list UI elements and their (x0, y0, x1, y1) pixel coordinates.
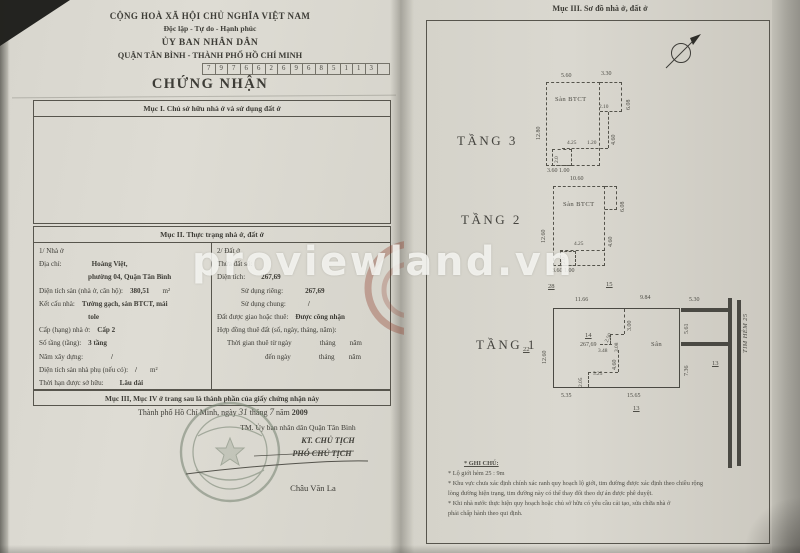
alley-connector (681, 342, 728, 346)
code-digit: 7 (228, 64, 241, 74)
issuer-name: ỦY BAN NHÂN DÂN (55, 38, 365, 48)
tang1-inner-line (600, 344, 612, 345)
north-compass-icon (662, 32, 702, 72)
note-line: * GHI CHÚ: (464, 459, 766, 469)
tang1-inner-line (610, 334, 611, 344)
tang1-inner-line (610, 334, 624, 335)
watermark-text: proviewland.vn (192, 239, 574, 285)
house-row: Địa chỉ:Hoàng Việt, (39, 258, 206, 271)
section-muc1: Mục I. Chủ sở hữu nhà ở và sử dụng đất ở (33, 100, 391, 224)
certificate-title: CHỨNG NHẬN (55, 76, 365, 93)
note-line: lòng đường hiện trạng, tim đường này có … (448, 489, 766, 499)
scan-edge-bottom (0, 545, 800, 553)
scan-corner-shadow (745, 495, 800, 553)
signature-strokes (140, 428, 380, 488)
code-digit: 2 (266, 64, 279, 74)
national-title: CỘNG HOÀ XÃ HỘI CHỦ NGHĨA VIỆT NAM (55, 11, 365, 21)
national-motto: Độc lập - Tự do - Hạnh phúc (55, 24, 365, 33)
house-row: Diện tích sàn (nhà ở, căn hộ):380,51m² (39, 285, 206, 298)
tang1-inner-line (618, 350, 619, 372)
tang1-lot-outline (553, 308, 680, 388)
note-line: * Khu vực chưa xác định chính xác ranh q… (448, 479, 766, 489)
house-row: tole (39, 311, 206, 324)
note-line: * Khi nhà nước thực hiện quy hoạch hoặc … (448, 499, 766, 509)
house-row: 1/ Nhà ở (39, 245, 206, 258)
code-digit: 7 (203, 64, 216, 74)
scan-edge-right (772, 0, 800, 553)
house-row: Cấp (hạng) nhà ở:Cấp 2 (39, 324, 206, 337)
code-digit: 6 (303, 64, 316, 74)
alley-line (737, 300, 741, 466)
year-value: 2009 (292, 408, 308, 417)
code-digit: 9 (216, 64, 229, 74)
land-row: đến ngàytháng năm (217, 351, 385, 364)
issuer-district: QUẬN TÂN BÌNH - THÀNH PHỐ HỒ CHÍ MINH (55, 51, 365, 60)
tang3-stair-notch (552, 149, 572, 166)
tang3-inner-line (608, 112, 609, 148)
house-row: Năm xây dựng:/ (39, 351, 206, 364)
house-row: phường 04, Quận Tân Bình (39, 271, 206, 284)
tang1-inner-line (588, 372, 589, 387)
tang2-wing-outline (605, 186, 617, 210)
code-digit: 8 (316, 64, 329, 74)
house-row: Kết cấu nhà:Tường gạch, sàn BTCT, mái (39, 298, 206, 311)
house-row: Diện tích sàn nhà phụ (nếu có):/m² (39, 364, 206, 377)
code-digit: 1 (353, 64, 366, 74)
code-digit: 3 (366, 64, 379, 74)
note-line: phải chấp hành theo qui định. (448, 509, 766, 519)
code-digit: 6 (253, 64, 266, 74)
muc1-heading: Mục I. Chủ sở hữu nhà ở và sử dụng đất ở (34, 101, 390, 117)
house-row: Số tầng (tầng):3 tầng (39, 337, 206, 350)
code-digit: 6 (241, 64, 254, 74)
house-row: Thời hạn được sở hữu:Lâu dài (39, 377, 206, 390)
scanned-certificate-sheet: CỘNG HOÀ XÃ HỘI CHỦ NGHĨA VIỆT NAM Độc l… (0, 0, 800, 553)
scan-edge-left (0, 0, 10, 553)
tang1-inner-line (588, 372, 618, 373)
code-digit: 9 (291, 64, 304, 74)
tang1-inner-line (624, 309, 625, 334)
alley-connector (681, 308, 728, 312)
ghi-chu-notes: * GHI CHÚ:* Lộ giới hẻm 25 : 9m* Khu vực… (448, 459, 766, 519)
certificate-code-boxes: 79766269685113 (202, 63, 390, 75)
alley-line (728, 298, 732, 468)
muc3-heading: Mục III. Sơ đồ nhà ở, đất ở (470, 4, 730, 13)
note-line: * Lộ giới hẻm 25 : 9m (448, 469, 766, 479)
code-digit: 1 (341, 64, 354, 74)
code-digit: 5 (328, 64, 341, 74)
house-column: 1/ Nhà ởĐịa chỉ:Hoàng Việt,phường 04, Qu… (34, 243, 212, 390)
code-digit: 6 (278, 64, 291, 74)
tang3-wing-outline (600, 82, 622, 112)
